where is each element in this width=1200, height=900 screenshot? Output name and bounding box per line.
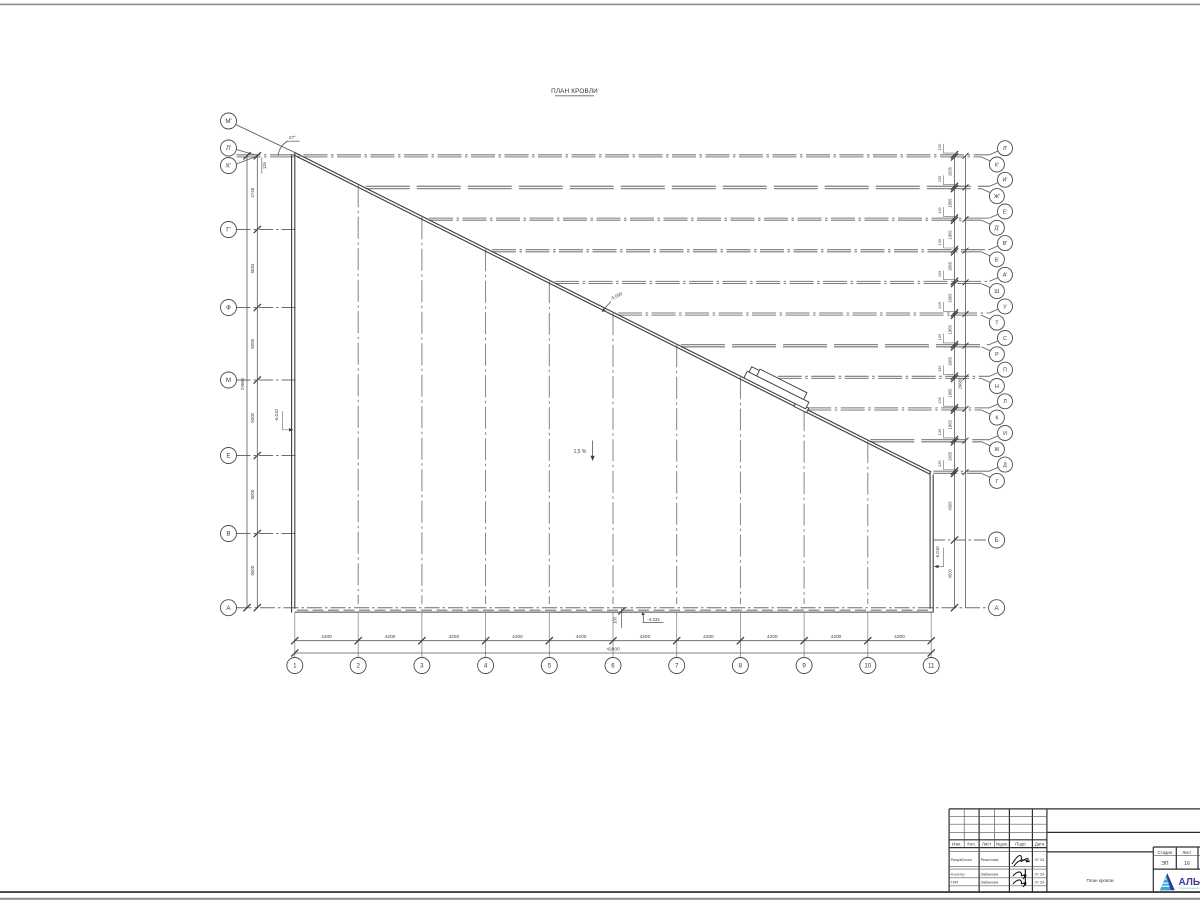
svg-text:Дата: Дата [1035, 841, 1045, 846]
svg-text:6: 6 [611, 663, 615, 670]
svg-text:Ш: Ш [994, 289, 999, 295]
svg-text:7: 7 [675, 663, 679, 670]
svg-text:Подп.: Подп. [1015, 841, 1026, 846]
svg-text:1: 1 [293, 663, 297, 670]
svg-text:9: 9 [802, 663, 806, 670]
svg-text:П: П [1003, 368, 1007, 374]
svg-text:Забыкова: Забыкова [981, 879, 999, 884]
svg-text:4200: 4200 [321, 634, 332, 640]
svg-text:Г': Г' [226, 227, 231, 234]
svg-text:135: 135 [937, 366, 942, 373]
svg-text:К': К' [995, 162, 999, 168]
svg-text:4200: 4200 [894, 634, 905, 640]
svg-text:1,5 %: 1,5 % [574, 449, 587, 455]
svg-text:135: 135 [937, 397, 942, 404]
svg-text:4305: 4305 [947, 501, 952, 511]
svg-text:4200: 4200 [831, 634, 842, 640]
svg-text:№док.: №док. [996, 841, 1009, 846]
svg-text:5: 5 [548, 663, 552, 670]
svg-text:4200: 4200 [767, 634, 778, 640]
svg-text:У: У [1003, 304, 1007, 310]
svg-text:И': И' [1003, 178, 1008, 184]
svg-text:1965: 1965 [947, 230, 952, 240]
svg-text:Забыкова: Забыкова [981, 871, 999, 876]
svg-text:16: 16 [1184, 861, 1190, 867]
svg-text:27°: 27° [289, 135, 296, 140]
svg-text:135: 135 [937, 176, 942, 183]
svg-text:Н: Н [995, 384, 999, 390]
svg-text:ПЛАН КРОВЛИ: ПЛАН КРОВЛИ [551, 88, 598, 95]
svg-text:135: 135 [937, 460, 942, 467]
svg-text:11: 11 [928, 663, 935, 670]
svg-text:4200: 4200 [385, 634, 396, 640]
svg-text:-6.010: -6.010 [274, 409, 279, 422]
svg-text:07.24: 07.24 [1035, 879, 1046, 884]
svg-text:Разработал: Разработал [951, 857, 972, 862]
svg-text:4: 4 [484, 663, 488, 670]
svg-text:07.24: 07.24 [1035, 871, 1046, 876]
svg-text:1965: 1965 [947, 420, 952, 430]
svg-text:Кол.: Кол. [967, 841, 976, 846]
svg-text:Л: Л [1003, 399, 1007, 405]
svg-text:1965: 1965 [947, 198, 952, 208]
svg-text:4200: 4200 [448, 634, 459, 640]
svg-text:В: В [226, 531, 230, 538]
svg-text:Изм.: Изм. [952, 841, 961, 846]
svg-text:8: 8 [739, 663, 743, 670]
svg-text:3: 3 [420, 663, 424, 670]
svg-text:4745: 4745 [250, 187, 255, 197]
svg-text:Л': Л' [226, 145, 231, 152]
svg-text:5000: 5000 [250, 565, 255, 575]
svg-text:Лист: Лист [1182, 850, 1191, 855]
svg-text:1965: 1965 [947, 261, 952, 271]
svg-text:4200: 4200 [512, 634, 523, 640]
svg-text:135: 135 [262, 161, 267, 169]
svg-text:ЭП: ЭП [1161, 861, 1169, 867]
svg-text:План кровли: План кровли [1086, 878, 1113, 883]
svg-text:2: 2 [356, 663, 360, 670]
svg-text:1935: 1935 [947, 166, 952, 176]
svg-text:Ж: Ж [994, 447, 999, 453]
svg-text:строительная компания: строительная компания [1179, 887, 1200, 890]
svg-text:135: 135 [937, 271, 942, 278]
svg-text:5000: 5000 [250, 338, 255, 348]
svg-text:5083: 5083 [250, 263, 255, 273]
svg-text:В': В' [1003, 241, 1008, 247]
svg-text:135: 135 [937, 239, 942, 246]
svg-text:М: М [226, 377, 231, 384]
svg-text:4500: 4500 [947, 569, 952, 579]
svg-text:29680: 29680 [240, 377, 245, 390]
svg-text:ГИП: ГИП [951, 879, 959, 884]
svg-text:Г: Г [995, 479, 998, 485]
svg-text:Б: Б [995, 537, 999, 544]
svg-text:5000: 5000 [250, 489, 255, 499]
svg-text:М': М' [225, 118, 231, 125]
svg-text:29680: 29680 [957, 377, 962, 389]
svg-text:1935: 1935 [947, 451, 952, 461]
svg-text:Решетова: Решетова [981, 857, 1000, 862]
svg-text:07.24: 07.24 [1035, 857, 1046, 862]
svg-text:1965: 1965 [947, 356, 952, 366]
svg-text:-4.334: -4.334 [647, 617, 660, 622]
svg-text:К': К' [226, 163, 231, 170]
svg-text:135: 135 [937, 207, 942, 214]
svg-text:Ж': Ж' [994, 194, 1000, 200]
svg-text:135: 135 [937, 429, 942, 436]
svg-text:4200: 4200 [640, 634, 651, 640]
svg-text:1965: 1965 [947, 325, 952, 335]
svg-text:135: 135 [937, 334, 942, 341]
svg-text:Д: Д [1003, 463, 1007, 469]
svg-text:Б': Б' [995, 257, 1000, 263]
svg-text:Р: Р [995, 352, 999, 358]
svg-text:А': А' [1003, 273, 1008, 279]
svg-text:Стадия: Стадия [1157, 850, 1172, 855]
svg-text:Л': Л' [1003, 146, 1008, 152]
svg-text:-6.010: -6.010 [935, 546, 940, 559]
svg-text:1965: 1965 [947, 388, 952, 398]
svg-text:Е': Е' [1003, 209, 1008, 215]
svg-text:Н.контр.: Н.контр. [951, 871, 966, 876]
svg-text:Д': Д' [995, 226, 1000, 232]
svg-text:С: С [1003, 336, 1007, 342]
svg-text:4200: 4200 [576, 634, 587, 640]
svg-text:10: 10 [864, 663, 871, 670]
svg-text:42000: 42000 [606, 647, 620, 653]
svg-text:4200: 4200 [703, 634, 714, 640]
svg-text:135: 135 [937, 144, 942, 151]
svg-text:Лист: Лист [982, 841, 991, 846]
svg-text:135: 135 [937, 302, 942, 309]
svg-text:5000: 5000 [250, 412, 255, 422]
svg-text:Е: Е [226, 453, 230, 460]
svg-text:И: И [1003, 431, 1007, 437]
svg-text:1965: 1965 [947, 293, 952, 303]
svg-text:Ф: Ф [226, 305, 231, 312]
